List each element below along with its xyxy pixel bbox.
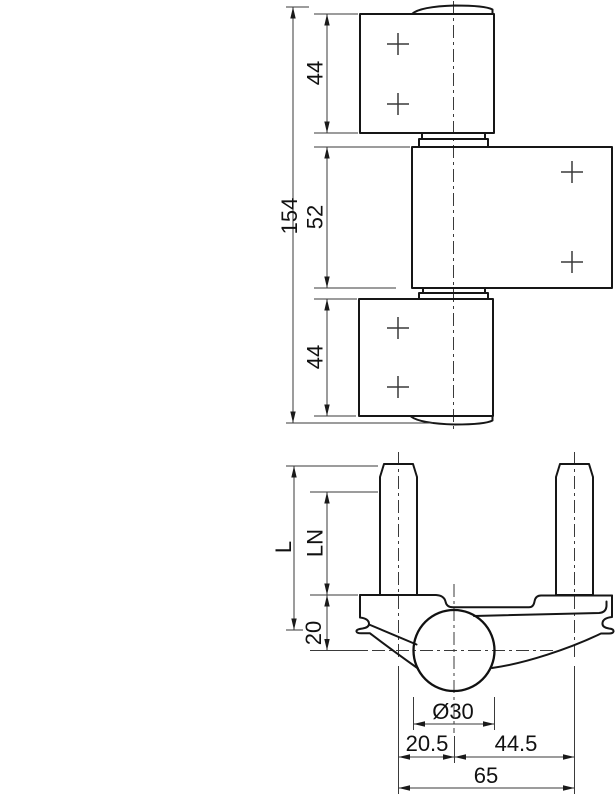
dim-label-axis-to-left-stud: 20.5 [406, 731, 449, 756]
dim-label-top-leaf: 44 [303, 61, 328, 85]
dim-label-middle-leaf: 52 [303, 205, 328, 229]
clamp-inner-edge-left [369, 625, 417, 645]
dim-thread-length: LN [303, 492, 379, 595]
dim-stud-spacing: 65 [399, 763, 575, 791]
drawing-canvas: 154 44 52 44 [0, 0, 616, 800]
dim-label-knuckle-diameter: Ø30 [432, 699, 474, 724]
dim-bottom-leaf: 44 [303, 299, 358, 416]
dim-label-total-height: 154 [277, 198, 302, 235]
dim-top-leaf: 44 [303, 14, 359, 133]
dim-top-to-axis: 20 [301, 595, 366, 651]
dim-label-bottom-leaf: 44 [303, 345, 328, 369]
dim-knuckle-diameter: Ø30 [414, 697, 495, 730]
middle-leaf [412, 147, 612, 288]
dim-label-stud-spacing: 65 [474, 763, 498, 788]
dim-middle-leaf: 52 [303, 147, 411, 288]
dim-label-axis-to-right-stud: 44.5 [495, 731, 538, 756]
front-view: 154 44 52 44 [277, 1, 612, 431]
dim-label-thread-length: LN [303, 529, 328, 557]
dim-label-top-to-axis: 20 [301, 621, 326, 645]
section-view: L LN 20 Ø30 [271, 452, 614, 794]
pin-cap-top [412, 6, 493, 15]
dim-total-height: 154 [277, 7, 433, 423]
screw-position-marks [387, 33, 583, 398]
top-leaf [360, 14, 494, 133]
bottom-leaf [359, 299, 493, 416]
dim-label-stud-length: L [271, 541, 296, 553]
hinge-technical-drawing: 154 44 52 44 [0, 0, 616, 800]
clamp-inner-edge-right [474, 602, 607, 617]
